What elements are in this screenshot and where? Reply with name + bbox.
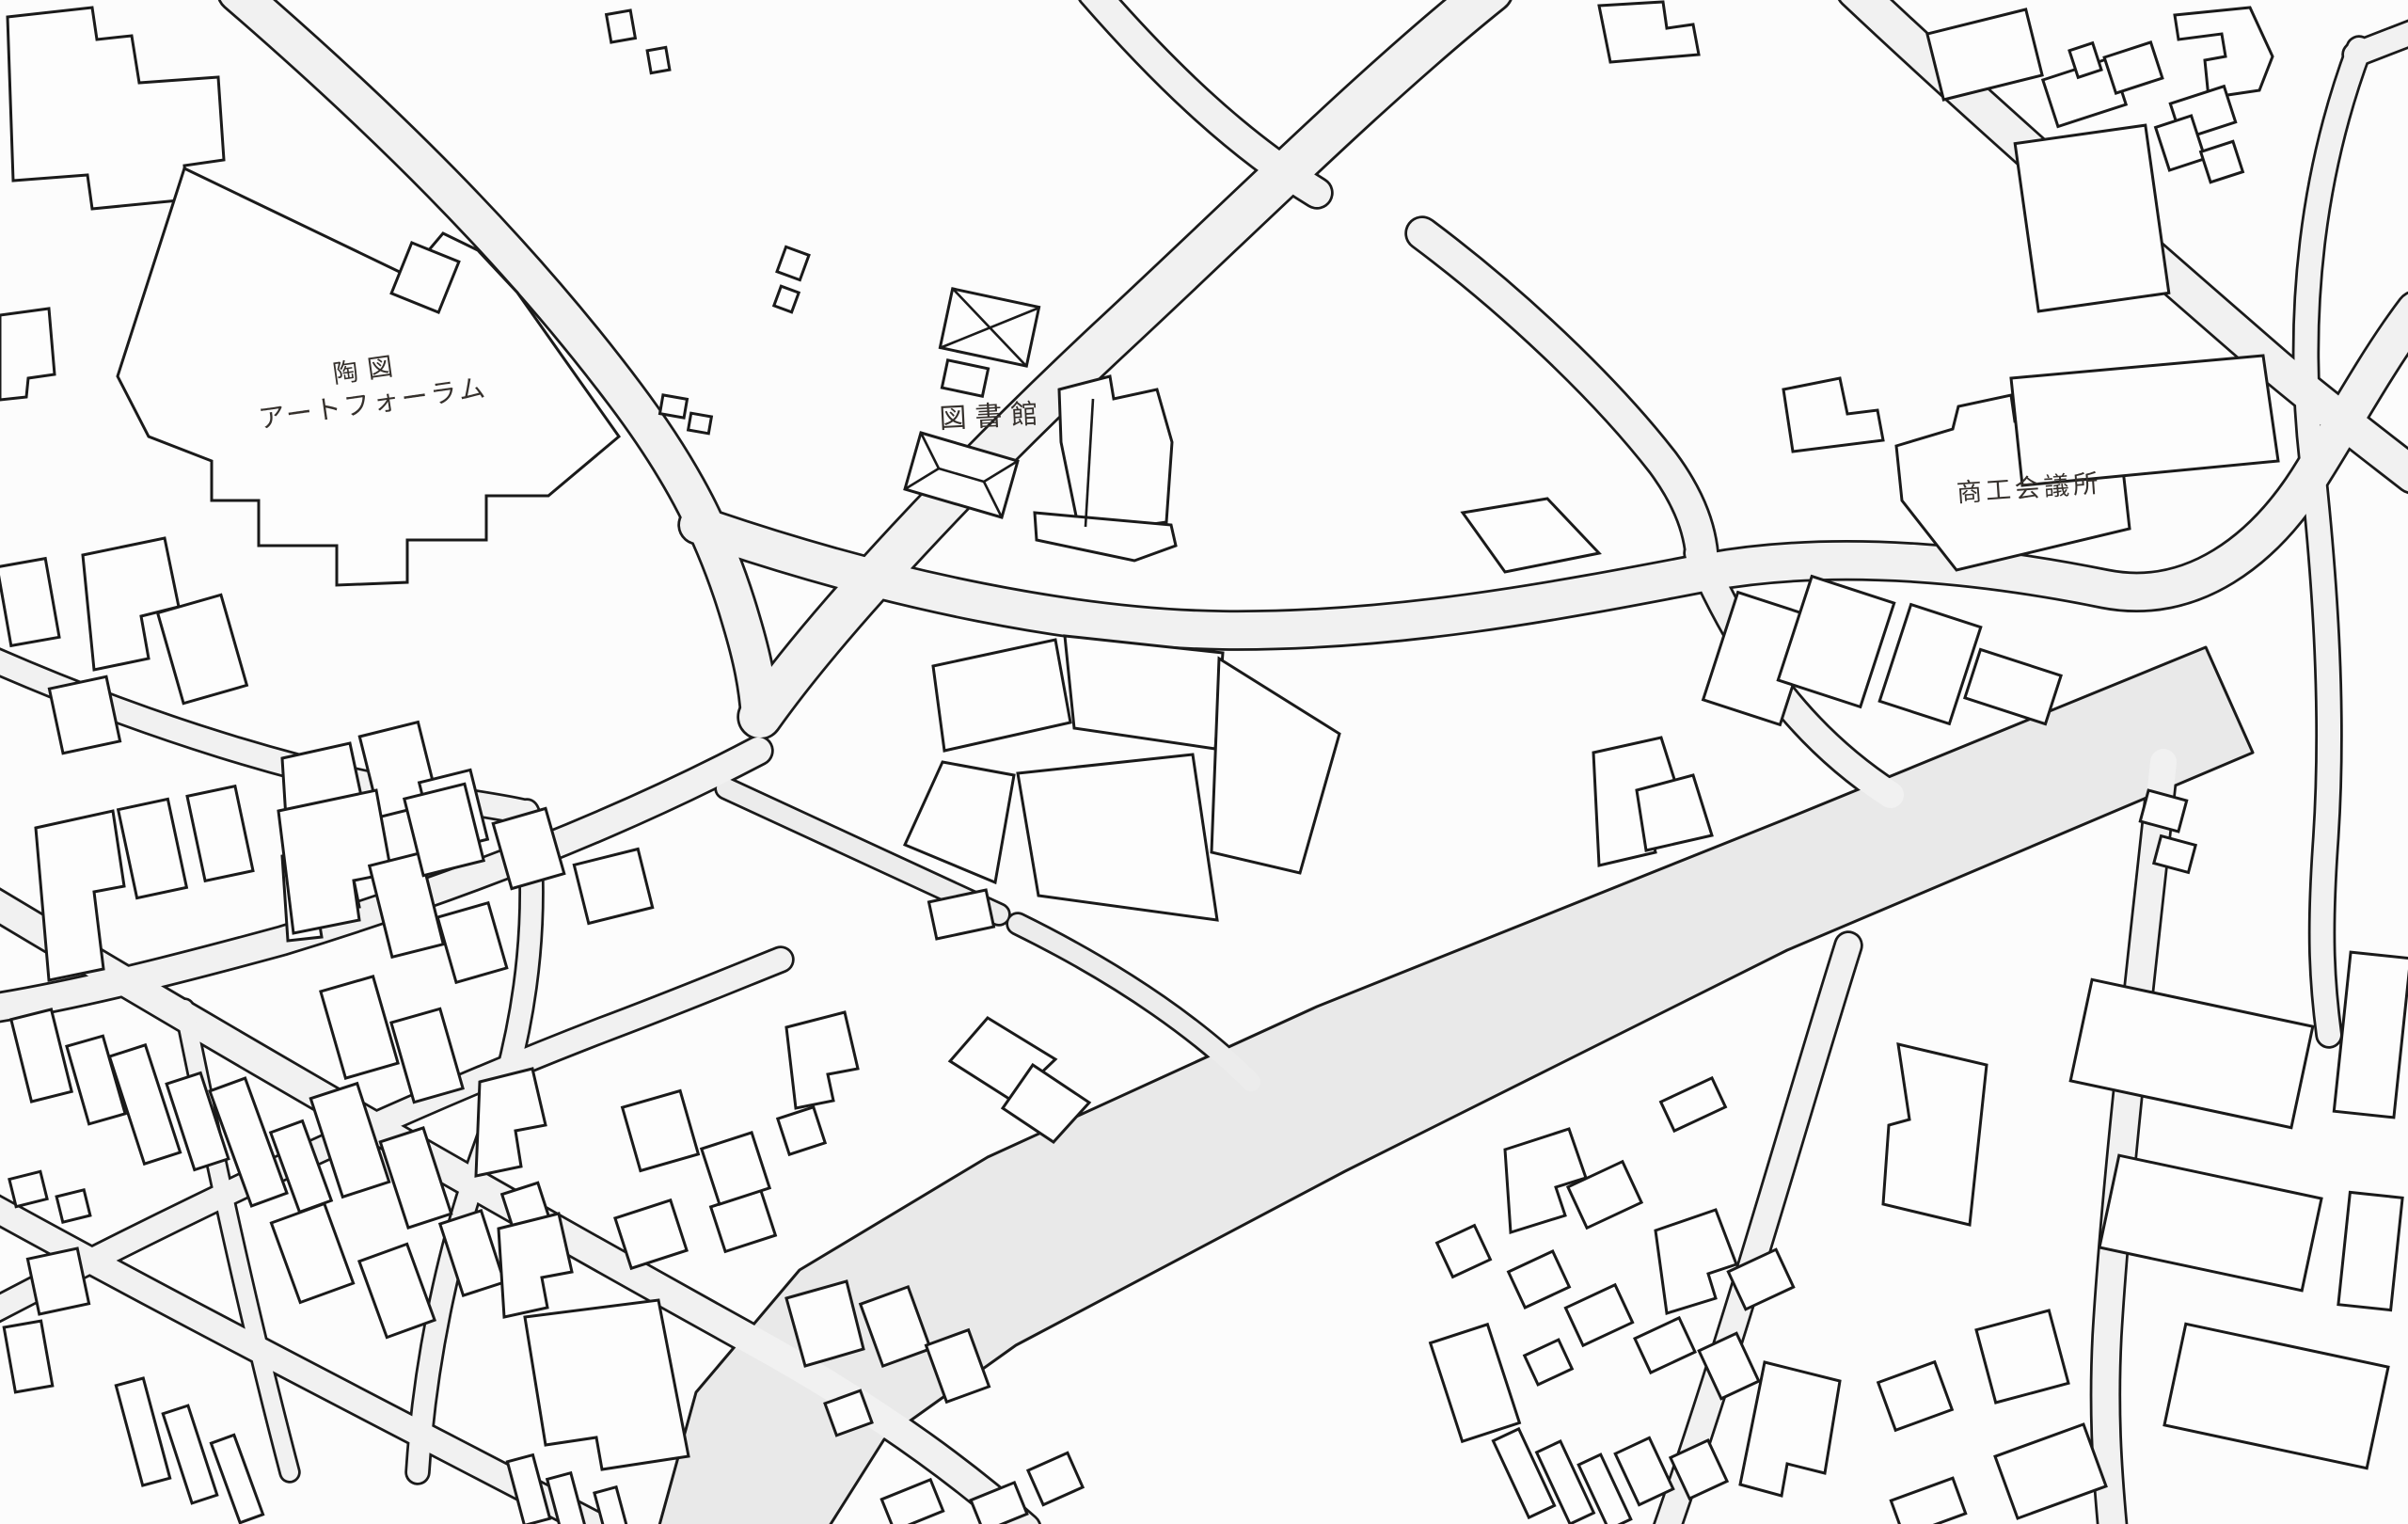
- building-outline: [660, 395, 688, 418]
- map-label: 図書館: [939, 397, 1048, 435]
- building-outline: [1018, 754, 1217, 920]
- building-outline: [1059, 376, 1172, 534]
- building-outline: [647, 47, 670, 72]
- building-outline: [27, 1248, 88, 1314]
- city-map-canvas: 陶図アートフォーラム図書館商工会議所: [0, 0, 2408, 1524]
- building-outline: [607, 10, 636, 42]
- building-outline: [525, 1300, 689, 1469]
- building-outline: [2338, 1192, 2402, 1310]
- building-outline: [2011, 356, 2278, 485]
- city-map-viewport: 陶図アートフォーラム図書館商工会議所: [0, 0, 2408, 1524]
- building-outline: [56, 1190, 90, 1222]
- building-outline: [2015, 125, 2169, 311]
- building-outline: [49, 676, 119, 753]
- building-outline: [689, 413, 712, 434]
- building-outline: [9, 1171, 47, 1206]
